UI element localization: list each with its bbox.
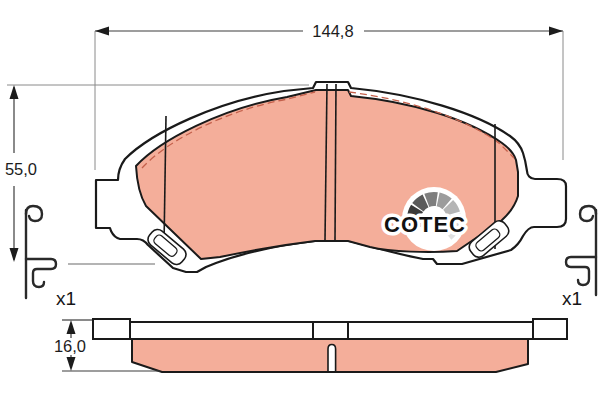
- side-center-groove: [328, 345, 336, 372]
- retaining-clip-left: [26, 206, 56, 298]
- side-plate-left-tab: [93, 319, 130, 339]
- dim-height-label: 55,0: [5, 160, 37, 178]
- side-plate-center-boss: [313, 322, 348, 339]
- clip-left-top-hook: [26, 206, 42, 221]
- arrowhead-up-icon: [10, 85, 19, 99]
- pad-side-view: [93, 319, 567, 372]
- dim-width-label: 144,8: [312, 22, 353, 40]
- arrowhead-down-icon: [10, 248, 19, 262]
- side-plate-right-tab: [533, 319, 567, 339]
- clip-qty-left-label: x1: [56, 288, 76, 309]
- brake-pad-technical-drawing: 144,8 55,0: [0, 0, 600, 400]
- arrowhead-up-icon: [67, 320, 76, 334]
- arrowhead-right-icon: [549, 27, 563, 36]
- dim-thickness-label: 16,0: [54, 337, 86, 355]
- retaining-clip-right: [566, 206, 596, 295]
- logo-text: COTEC: [384, 212, 466, 237]
- arrowhead-left-icon: [95, 27, 109, 36]
- clip-right-foot: [566, 257, 596, 285]
- clip-qty-right-label: x1: [562, 288, 582, 309]
- center-slot-right-edge: [335, 84, 336, 240]
- clip-left-foot: [26, 259, 56, 287]
- clip-right-top-hook: [580, 206, 596, 221]
- drawing-canvas: 144,8 55,0: [0, 0, 600, 400]
- pad-front-view: COTEC COTEC: [96, 82, 566, 272]
- arrowhead-down-icon: [67, 357, 76, 371]
